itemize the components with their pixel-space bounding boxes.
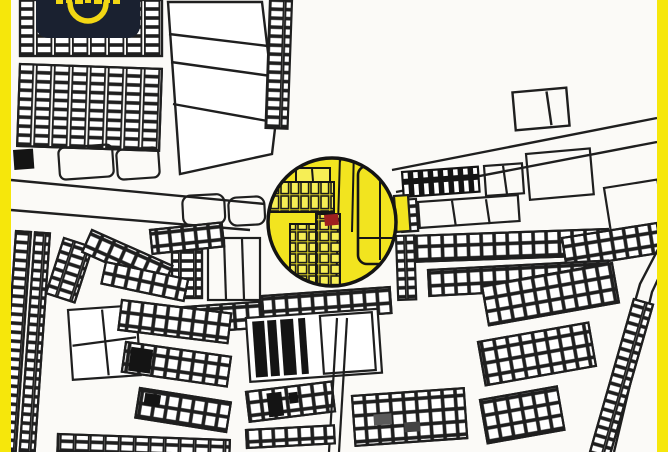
- listing-map-screenshot: [0, 0, 668, 452]
- frame-bar-right: [657, 0, 668, 452]
- black-parcel: [266, 392, 284, 418]
- dark-slat-strip: [402, 167, 480, 197]
- large-parcels-top-middle: [168, 2, 276, 174]
- highlight-parcel-column: [316, 214, 340, 292]
- frame-bar-left: [0, 0, 11, 452]
- black-parcel: [288, 392, 298, 404]
- parcel-block: [17, 64, 162, 151]
- brand-logo-badge: [36, 0, 140, 38]
- parcel-strip-top-center: [266, 0, 292, 129]
- black-parcel: [128, 347, 153, 374]
- cadastral-map[interactable]: [0, 0, 668, 452]
- location-marker[interactable]: [324, 214, 339, 226]
- black-parcel: [13, 149, 34, 170]
- gray-parcel: [373, 413, 392, 425]
- gray-parcel: [404, 421, 421, 432]
- black-parcel: [143, 393, 161, 407]
- parcel-block: [168, 2, 276, 174]
- cadastral-map-svg[interactable]: [0, 0, 668, 452]
